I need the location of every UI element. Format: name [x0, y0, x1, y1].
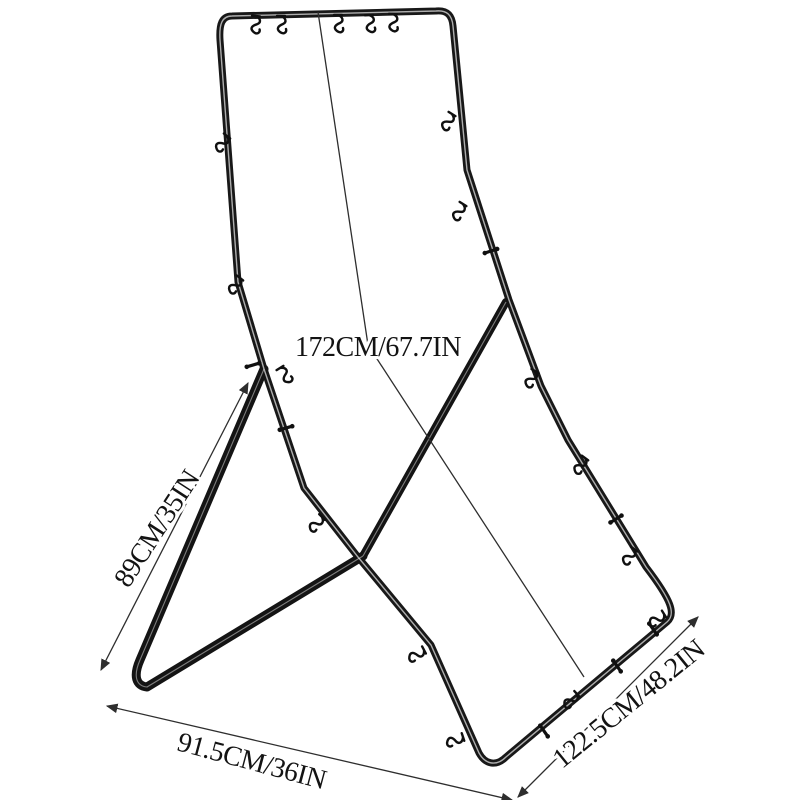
- frame-highlight: [220, 11, 672, 763]
- s-hook: [277, 16, 286, 33]
- s-hook: [365, 15, 375, 33]
- s-hook: [445, 733, 464, 747]
- hooks: [213, 14, 667, 747]
- diagram-canvas: 172CM/67.7IN 89CM/35IN 91.5CM/36IN 122.5…: [0, 0, 800, 800]
- s-hook: [277, 365, 294, 384]
- tube-clip: [244, 360, 262, 369]
- s-hook: [439, 112, 456, 131]
- dimension-lines: [101, 12, 698, 800]
- s-hook: [307, 514, 326, 533]
- dimension-label-height: 172CM/67.7IN: [295, 332, 461, 363]
- s-hook: [334, 15, 343, 32]
- s-hook: [620, 547, 638, 566]
- s-hook: [407, 646, 427, 662]
- dimension-label-base-width: 91.5CM/36IN: [174, 727, 329, 796]
- product-dimension-diagram: 172CM/67.7IN 89CM/35IN 91.5CM/36IN 122.5…: [0, 0, 800, 800]
- s-hook: [450, 202, 467, 221]
- frame-outline: [220, 11, 672, 763]
- s-hook: [562, 691, 581, 709]
- s-hook: [388, 14, 398, 32]
- dimension-labels: 172CM/67.7IN 89CM/35IN 91.5CM/36IN 122.5…: [108, 332, 711, 796]
- frame-structure: [136, 11, 671, 763]
